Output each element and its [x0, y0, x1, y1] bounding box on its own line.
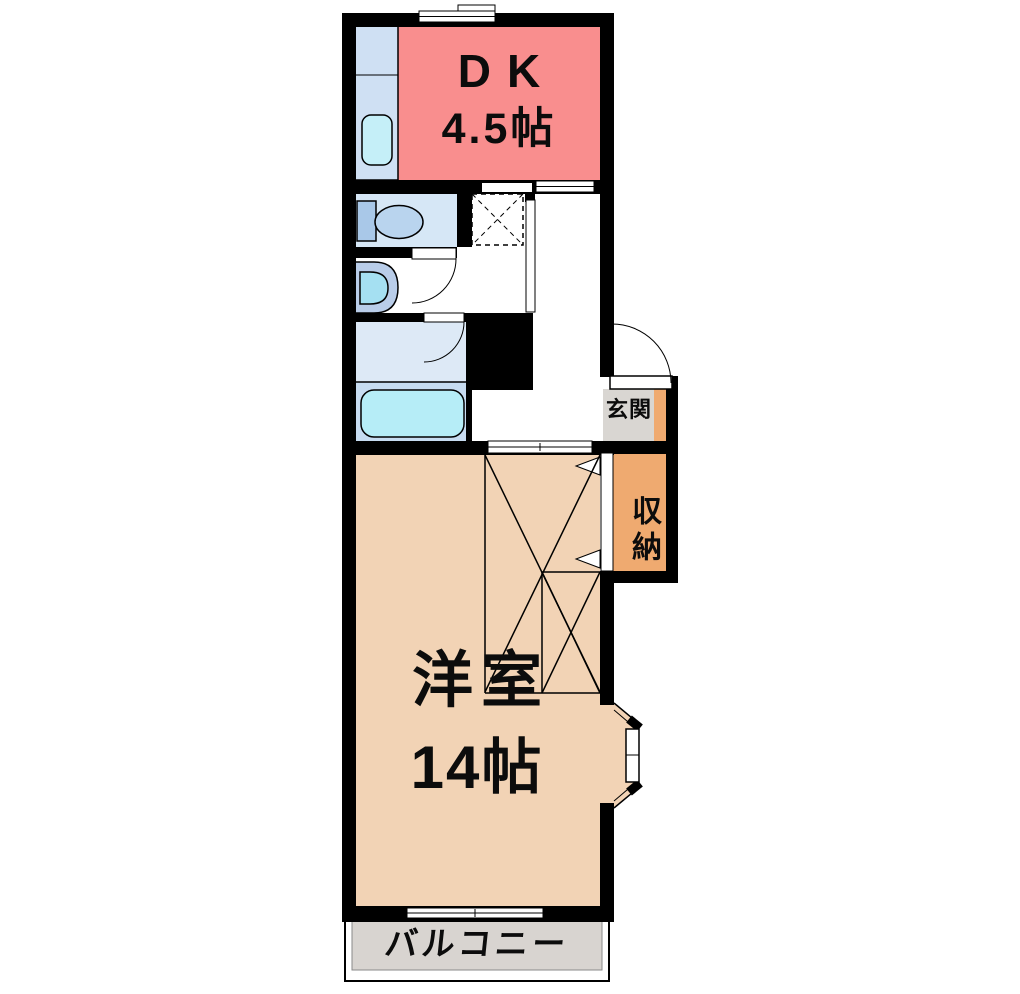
toilet-tank: [357, 201, 376, 241]
entrance-label: 玄関: [603, 399, 655, 421]
wall-right-mid: [600, 583, 614, 705]
washbasin-inner: [360, 272, 388, 304]
entrance-accent-strip: [654, 389, 667, 442]
kitchen-sink: [362, 115, 392, 165]
entrance-door-leaf: [610, 376, 672, 389]
wall-shaft: [470, 313, 533, 390]
western-room-label: 洋室: [354, 650, 600, 711]
entrance-door-arc: [612, 324, 671, 383]
wall-entrance-storage: [600, 441, 678, 454]
bathtub: [361, 390, 464, 437]
room-bath-upper-floor: [354, 322, 466, 382]
washroom-door-arc: [412, 259, 456, 303]
dk-room-label: DK: [398, 48, 600, 94]
wall-right-upper: [600, 13, 614, 377]
wall-toilet-right: [457, 194, 472, 247]
floor-plan: DK 4.5帖 洋室 14帖 玄関 収納 バルコニー: [0, 0, 1020, 994]
storage-label: 収納: [622, 483, 658, 579]
kitchen-opening: [482, 183, 532, 192]
balcony-label: バルコニー: [350, 927, 603, 960]
toilet-bowl: [375, 206, 423, 239]
western-room-size-label: 14帖: [354, 738, 600, 798]
refrigerator-space: [472, 194, 523, 245]
wall-entrance-right: [666, 376, 678, 583]
wall-right-lower: [600, 803, 614, 906]
washroom-door-opening: [412, 248, 456, 259]
storage-sliding-track: [601, 453, 613, 571]
hall-partition-track: [526, 200, 535, 312]
bathroom-door-opening: [424, 313, 464, 322]
dk-size-label: 4.5帖: [390, 108, 608, 151]
